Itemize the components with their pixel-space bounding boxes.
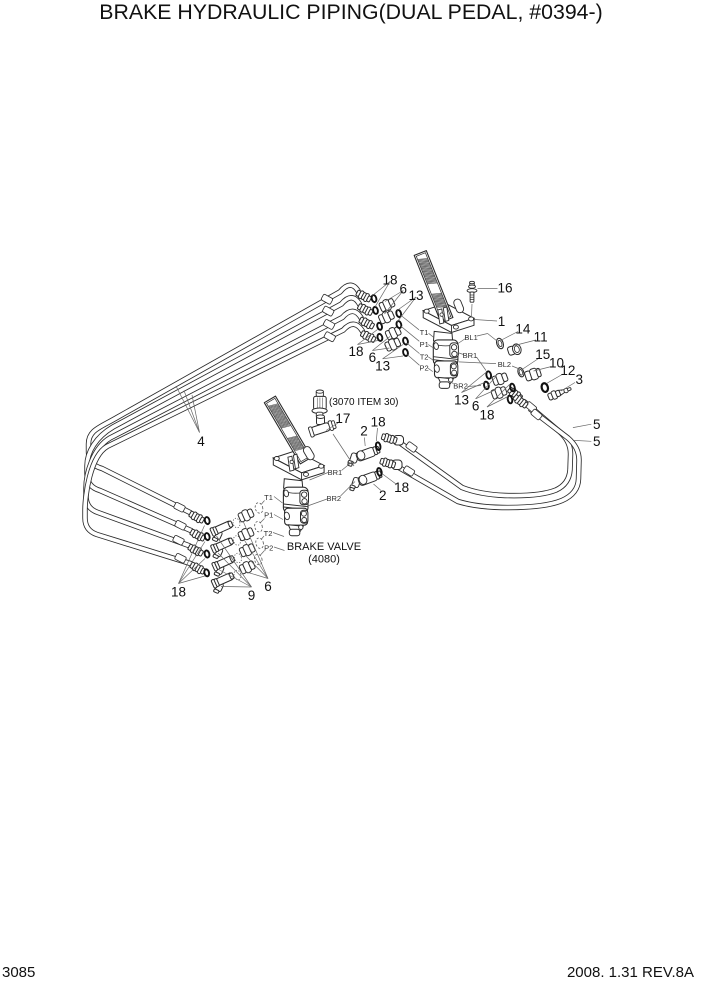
svg-text:5: 5 (593, 434, 601, 449)
svg-text:12: 12 (560, 363, 575, 378)
svg-text:2: 2 (379, 488, 387, 503)
svg-text:P1: P1 (420, 340, 429, 349)
svg-text:18: 18 (171, 585, 186, 600)
svg-text:17: 17 (335, 411, 350, 426)
svg-text:BR2: BR2 (453, 382, 468, 391)
svg-text:5: 5 (593, 417, 601, 432)
svg-text:18: 18 (348, 344, 363, 359)
svg-text:3: 3 (576, 372, 584, 387)
svg-text:11: 11 (534, 330, 548, 345)
svg-text:9: 9 (248, 588, 256, 603)
svg-text:T1: T1 (264, 493, 273, 502)
svg-text:BL1: BL1 (464, 333, 477, 342)
svg-text:T1: T1 (420, 328, 429, 337)
svg-text:18: 18 (371, 415, 386, 430)
svg-text:18: 18 (382, 273, 397, 288)
svg-text:4: 4 (197, 434, 205, 449)
svg-text:BR2: BR2 (327, 494, 342, 503)
svg-text:P1: P1 (264, 511, 273, 520)
svg-text:BR1: BR1 (328, 468, 343, 477)
svg-text:(4080): (4080) (308, 554, 340, 566)
svg-text:BR1: BR1 (463, 351, 478, 360)
svg-text:2: 2 (360, 424, 368, 439)
svg-text:13: 13 (408, 288, 423, 303)
svg-text:1: 1 (498, 314, 506, 329)
svg-text:13: 13 (375, 359, 390, 374)
svg-text:(3070 ITEM 30): (3070 ITEM 30) (329, 397, 398, 408)
svg-text:T2: T2 (264, 529, 273, 538)
svg-text:BL2: BL2 (498, 360, 511, 369)
svg-text:BRAKE VALVE: BRAKE VALVE (287, 541, 361, 553)
svg-text:16: 16 (497, 281, 512, 296)
svg-text:13: 13 (454, 393, 469, 408)
svg-text:6: 6 (264, 579, 272, 594)
svg-text:3085: 3085 (2, 964, 35, 981)
svg-text:18: 18 (479, 408, 494, 423)
svg-text:BRAKE HYDRAULIC PIPING(DUAL PE: BRAKE HYDRAULIC PIPING(DUAL PEDAL, #0394… (99, 0, 602, 24)
svg-text:2008. 1.31 REV.8A: 2008. 1.31 REV.8A (567, 964, 694, 981)
svg-text:14: 14 (515, 322, 531, 337)
svg-text:6: 6 (472, 399, 480, 414)
svg-text:T2: T2 (420, 352, 429, 361)
svg-text:P2: P2 (420, 364, 429, 373)
svg-text:18: 18 (394, 480, 409, 495)
svg-text:6: 6 (400, 282, 408, 297)
svg-text:P2: P2 (264, 544, 273, 553)
